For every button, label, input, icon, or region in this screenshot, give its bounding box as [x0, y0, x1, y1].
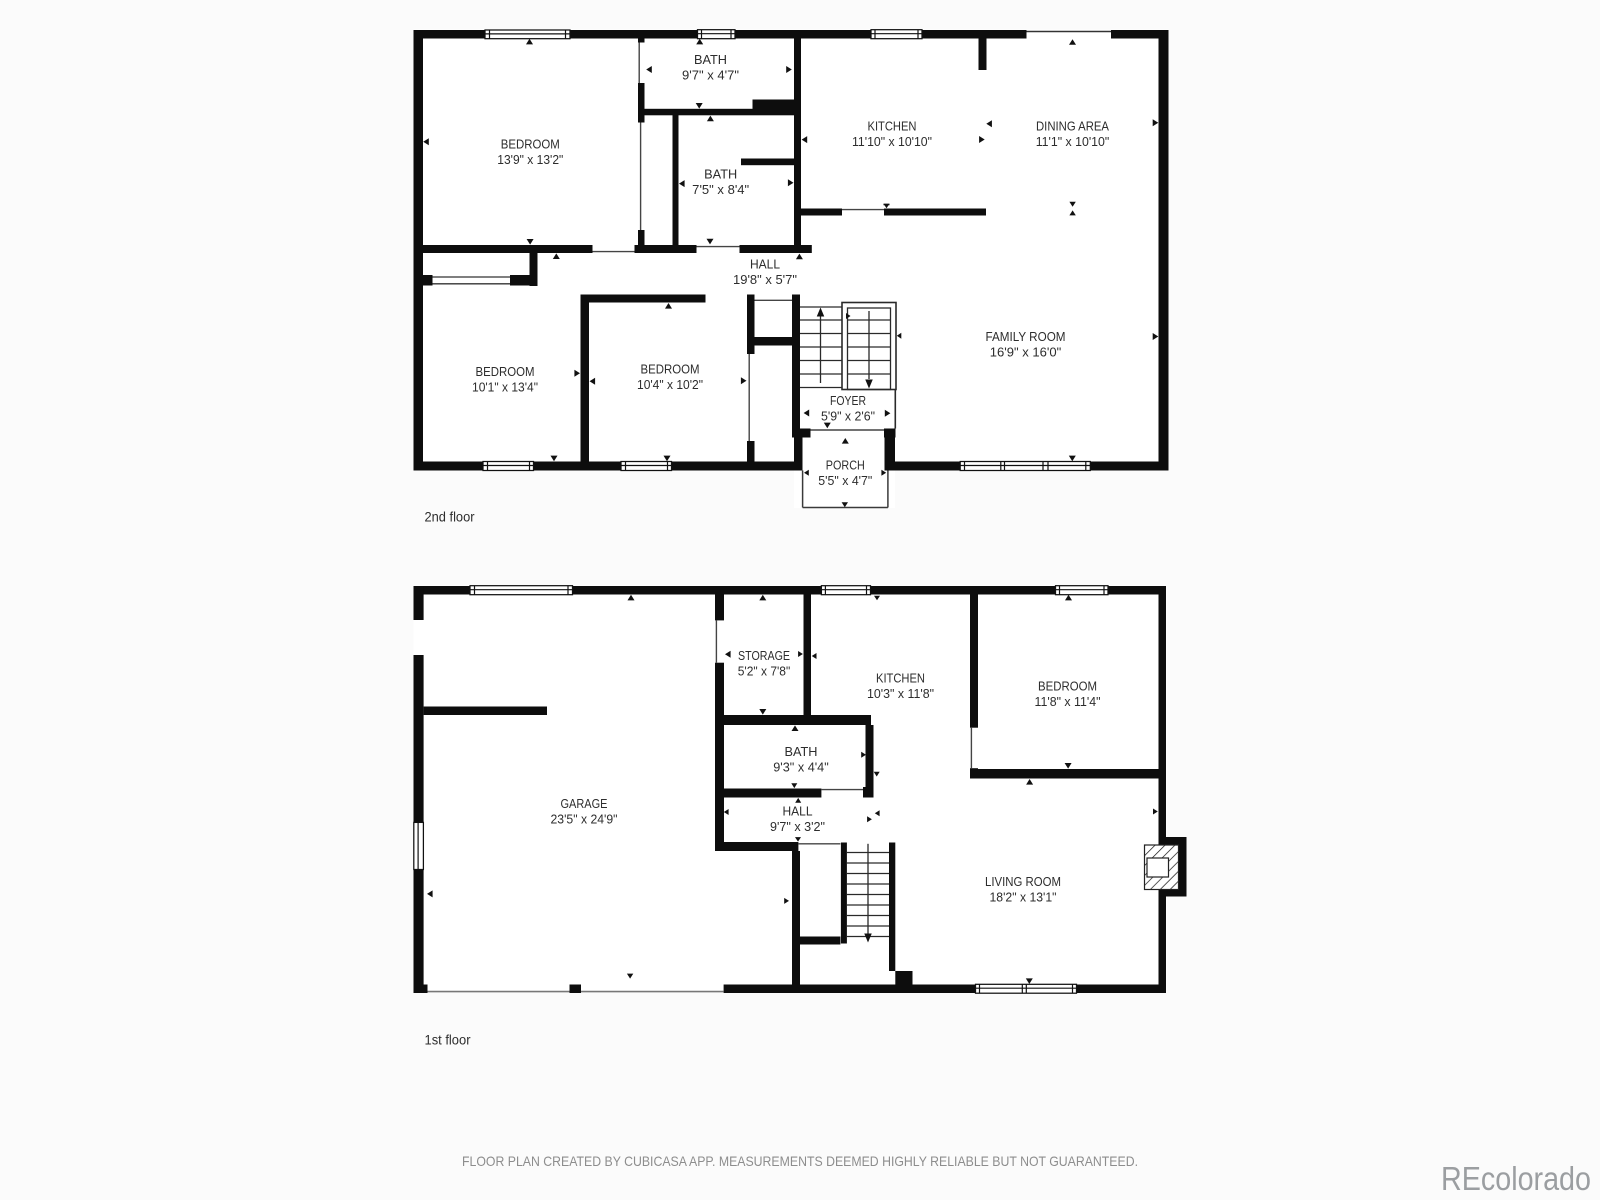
svg-text:BATH: BATH — [704, 168, 737, 182]
svg-text:13'9" x 13'2": 13'9" x 13'2" — [497, 153, 563, 167]
svg-text:10'4" x 10'2": 10'4" x 10'2" — [637, 378, 703, 392]
svg-text:11'10" x 10'10": 11'10" x 10'10" — [852, 135, 932, 149]
svg-text:23'5" x 24'9": 23'5" x 24'9" — [551, 813, 618, 827]
svg-text:LIVING ROOM: LIVING ROOM — [985, 875, 1061, 889]
svg-text:10'1" x 13'4": 10'1" x 13'4" — [472, 381, 538, 395]
svg-text:STORAGE: STORAGE — [738, 649, 790, 663]
svg-text:HALL: HALL — [750, 257, 780, 271]
svg-text:KITCHEN: KITCHEN — [868, 119, 917, 133]
svg-text:10'3" x 11'8": 10'3" x 11'8" — [867, 687, 934, 701]
svg-text:DINING AREA: DINING AREA — [1036, 119, 1110, 133]
svg-text:FOYER: FOYER — [830, 394, 866, 408]
svg-text:9'3" x 4'4": 9'3" x 4'4" — [773, 761, 829, 775]
svg-text:GARAGE: GARAGE — [561, 797, 608, 811]
svg-text:7'5" x 8'4": 7'5" x 8'4" — [692, 183, 749, 197]
svg-text:FLOOR PLAN CREATED BY CUBICASA: FLOOR PLAN CREATED BY CUBICASA APP. MEAS… — [462, 1154, 1138, 1169]
svg-text:5'9" x 2'6": 5'9" x 2'6" — [821, 410, 875, 424]
svg-text:11'8" x 11'4": 11'8" x 11'4" — [1035, 695, 1101, 709]
svg-text:BEDROOM: BEDROOM — [641, 363, 700, 377]
svg-text:11'1" x 10'10": 11'1" x 10'10" — [1036, 135, 1110, 149]
svg-text:BATH: BATH — [785, 745, 818, 759]
svg-text:REcolorado: REcolorado — [1441, 1160, 1591, 1197]
svg-text:BATH: BATH — [694, 53, 727, 67]
svg-text:BEDROOM: BEDROOM — [501, 138, 560, 152]
svg-text:BEDROOM: BEDROOM — [476, 365, 535, 379]
svg-text:FAMILY ROOM: FAMILY ROOM — [986, 330, 1066, 344]
svg-text:19'8" x 5'7": 19'8" x 5'7" — [733, 273, 797, 287]
svg-text:16'9" x 16'0": 16'9" x 16'0" — [990, 346, 1062, 360]
svg-text:HALL: HALL — [783, 805, 813, 819]
svg-text:5'2" x 7'8": 5'2" x 7'8" — [738, 665, 791, 679]
svg-text:18'2" x 13'1": 18'2" x 13'1" — [990, 891, 1057, 905]
svg-text:9'7" x 3'2": 9'7" x 3'2" — [770, 820, 825, 834]
svg-text:2nd floor: 2nd floor — [425, 510, 475, 526]
svg-text:PORCH: PORCH — [826, 459, 865, 473]
svg-text:1st floor: 1st floor — [425, 1033, 471, 1049]
svg-text:9'7" x 4'7": 9'7" x 4'7" — [682, 69, 739, 83]
svg-text:5'5" x 4'7": 5'5" x 4'7" — [818, 474, 872, 488]
svg-text:KITCHEN: KITCHEN — [876, 672, 925, 686]
svg-text:BEDROOM: BEDROOM — [1038, 680, 1097, 694]
